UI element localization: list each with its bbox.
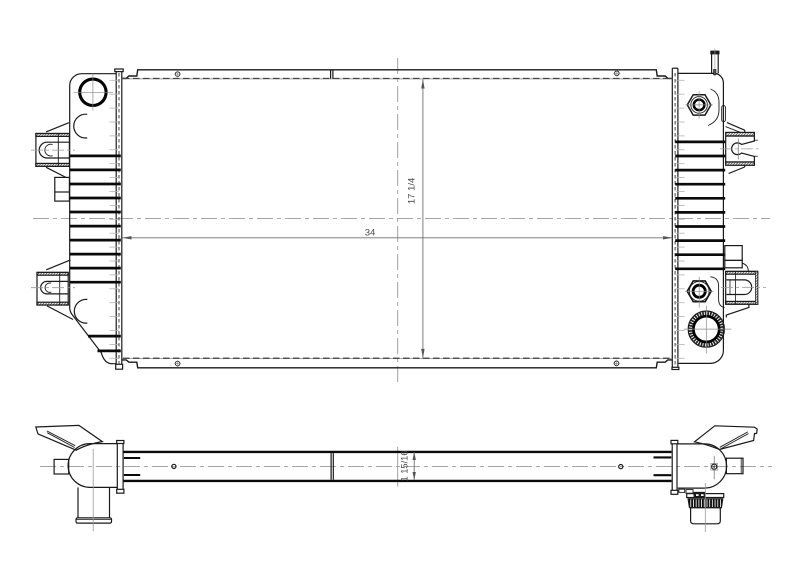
svg-text:17 1/4: 17 1/4	[406, 178, 417, 204]
svg-text:1 15/16: 1 15/16	[400, 450, 410, 481]
svg-text:34: 34	[365, 227, 376, 238]
